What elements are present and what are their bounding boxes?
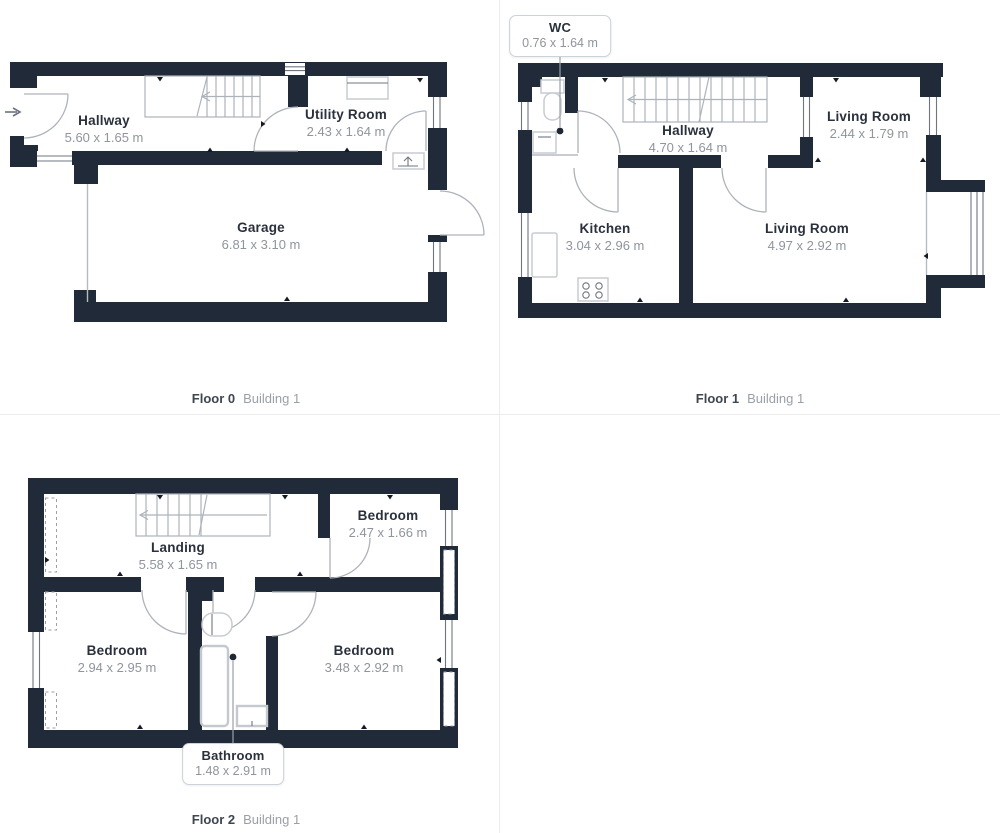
- room-dims: 5.58 x 1.65 m: [139, 557, 218, 572]
- floor-number: Floor 2: [192, 812, 235, 827]
- room-name: Kitchen: [566, 221, 645, 236]
- room-name: Living Room: [765, 221, 849, 236]
- room-dims: 5.60 x 1.65 m: [65, 130, 144, 145]
- floor-1-plan: WC 0.76 x 1.64 m Hallway 4.70 x 1.64 m L…: [500, 0, 1000, 419]
- fridge-fixture: [532, 233, 557, 277]
- building-name: Building 1: [747, 391, 804, 406]
- floor-2-plan: Landing 5.58 x 1.65 m Bedroom 2.47 x 1.6…: [0, 414, 500, 833]
- floor-0-drawing: [0, 0, 500, 414]
- room-name: Hallway: [649, 123, 728, 138]
- room-dims: 2.47 x 1.66 m: [349, 525, 428, 540]
- bathroom-leader-line: [230, 654, 237, 743]
- hob-fixture: [578, 278, 608, 301]
- building-name: Building 1: [243, 812, 300, 827]
- room-name: Bedroom: [78, 643, 157, 658]
- vent-fixture: [393, 153, 424, 169]
- staircase: [623, 77, 767, 122]
- toilet-fixture: [202, 613, 232, 636]
- floor-2-caption: Floor 2Building 1: [192, 812, 300, 827]
- floor-1-caption: Floor 1Building 1: [696, 391, 804, 406]
- room-name: Garage: [222, 220, 301, 235]
- room-dims: 4.97 x 2.92 m: [765, 238, 849, 253]
- room-name: Landing: [139, 540, 218, 555]
- room-name: Living Room: [827, 109, 911, 124]
- room-dims: 3.48 x 2.92 m: [325, 660, 404, 675]
- room-label-bedroom-left: Bedroom 2.94 x 2.95 m: [78, 643, 157, 675]
- room-label-hallway: Hallway 5.60 x 1.65 m: [65, 113, 144, 145]
- floor-0-plan: Hallway 5.60 x 1.65 m Utility Room 2.43 …: [0, 0, 500, 419]
- sink-fixture: [237, 706, 267, 726]
- room-name: WC: [522, 20, 598, 35]
- staircase: [136, 494, 270, 536]
- washer-fixture: [347, 77, 388, 99]
- room-dims: 2.44 x 1.79 m: [827, 126, 911, 141]
- room-label-landing: Landing 5.58 x 1.65 m: [139, 540, 218, 572]
- floor-0-caption: Floor 0Building 1: [192, 391, 300, 406]
- room-dims: 1.48 x 2.91 m: [195, 764, 271, 778]
- room-dims: 4.70 x 1.64 m: [649, 140, 728, 155]
- room-name: Bathroom: [195, 748, 271, 763]
- room-dims: 6.81 x 3.10 m: [222, 237, 301, 252]
- wc-callout: WC 0.76 x 1.64 m: [509, 15, 611, 57]
- floor-number: Floor 0: [192, 391, 235, 406]
- bathroom-callout: Bathroom 1.48 x 2.91 m: [182, 743, 284, 785]
- room-dims: 3.04 x 2.96 m: [566, 238, 645, 253]
- room-dims: 2.94 x 2.95 m: [78, 660, 157, 675]
- floor-1-drawing: [500, 0, 1000, 414]
- floor-number: Floor 1: [696, 391, 739, 406]
- room-label-hallway: Hallway 4.70 x 1.64 m: [649, 123, 728, 155]
- room-label-living-room-large: Living Room 4.97 x 2.92 m: [765, 221, 849, 253]
- sink-fixture: [533, 132, 556, 153]
- room-label-bedroom-right: Bedroom 3.48 x 2.92 m: [325, 643, 404, 675]
- staircase: [145, 76, 260, 117]
- floorplan-canvas: Hallway 5.60 x 1.65 m Utility Room 2.43 …: [0, 0, 1000, 833]
- building-name: Building 1: [243, 391, 300, 406]
- bathtub-fixture: [201, 646, 228, 726]
- room-dims: 2.43 x 1.64 m: [305, 124, 387, 139]
- room-label-utility-room: Utility Room 2.43 x 1.64 m: [305, 107, 387, 139]
- entry-arrow-icon: [5, 108, 20, 116]
- room-name: Utility Room: [305, 107, 387, 122]
- room-name: Hallway: [65, 113, 144, 128]
- room-name: Bedroom: [349, 508, 428, 523]
- room-name: Bedroom: [325, 643, 404, 658]
- room-label-garage: Garage 6.81 x 3.10 m: [222, 220, 301, 252]
- room-label-bedroom-top: Bedroom 2.47 x 1.66 m: [349, 508, 428, 540]
- walls: [10, 62, 447, 322]
- room-dims: 0.76 x 1.64 m: [522, 36, 598, 50]
- room-label-kitchen: Kitchen 3.04 x 2.96 m: [566, 221, 645, 253]
- room-label-living-room-small: Living Room 2.44 x 1.79 m: [827, 109, 911, 141]
